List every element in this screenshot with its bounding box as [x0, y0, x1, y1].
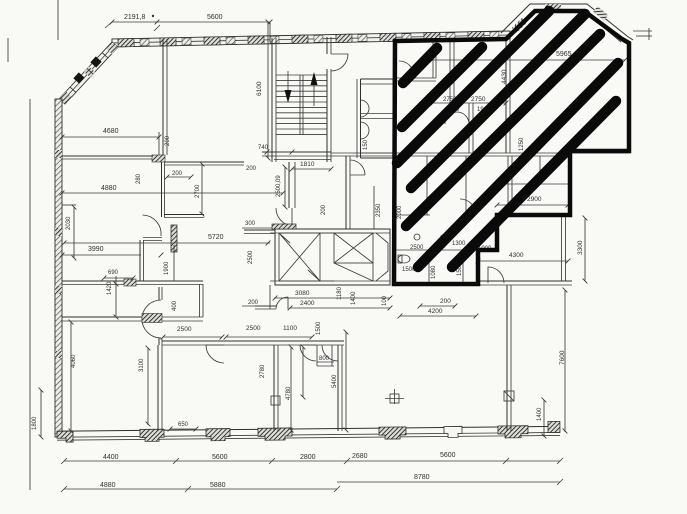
- svg-text:3300: 3300: [577, 240, 584, 255]
- svg-text:2350: 2350: [376, 203, 382, 217]
- svg-text:200: 200: [248, 300, 259, 306]
- svg-text:200: 200: [321, 204, 327, 215]
- svg-text:5400: 5400: [332, 374, 338, 388]
- svg-text:3080: 3080: [295, 290, 310, 297]
- svg-text:2500: 2500: [246, 325, 261, 332]
- svg-text:4300: 4300: [509, 252, 524, 259]
- svg-text:4880: 4880: [100, 482, 116, 489]
- svg-text:280: 280: [136, 173, 142, 184]
- svg-text:4680: 4680: [103, 128, 119, 135]
- svg-text:690: 690: [108, 270, 119, 276]
- svg-text:5880: 5880: [210, 482, 226, 489]
- svg-text:1250: 1250: [519, 137, 525, 151]
- svg-text:150: 150: [363, 139, 369, 150]
- svg-text:2900: 2900: [527, 196, 542, 203]
- svg-text:2500: 2500: [177, 326, 192, 333]
- svg-text:200: 200: [246, 166, 257, 172]
- svg-text:2030: 2030: [66, 216, 72, 230]
- svg-text:4060: 4060: [71, 354, 77, 368]
- svg-text:3990: 3990: [88, 246, 104, 253]
- svg-text:4400: 4400: [103, 454, 119, 461]
- svg-text:4880: 4880: [101, 185, 117, 192]
- svg-text:2400: 2400: [300, 300, 315, 307]
- svg-text:2800: 2800: [300, 454, 316, 461]
- svg-text:3100: 3100: [139, 358, 145, 372]
- svg-text:100: 100: [382, 295, 388, 306]
- svg-text:2680: 2680: [352, 453, 368, 460]
- svg-text:200: 200: [165, 135, 171, 146]
- svg-text:4200: 4200: [428, 308, 443, 315]
- svg-text:5720: 5720: [208, 234, 224, 241]
- svg-text:2780: 2780: [260, 364, 266, 378]
- svg-text:740: 740: [258, 145, 269, 151]
- svg-text:2191,8: 2191,8: [124, 14, 146, 21]
- svg-text:650: 650: [178, 422, 189, 428]
- svg-text:5600: 5600: [212, 454, 228, 461]
- svg-text:2500,09: 2500,09: [276, 175, 282, 197]
- svg-text:1800: 1800: [32, 416, 38, 430]
- svg-text:1400: 1400: [351, 291, 357, 305]
- svg-text:2000: 2000: [397, 205, 403, 219]
- svg-text:6100: 6100: [256, 81, 263, 96]
- svg-text:1400: 1400: [537, 407, 543, 421]
- svg-text:200: 200: [172, 171, 183, 177]
- svg-text:300: 300: [245, 221, 256, 227]
- svg-text:5600: 5600: [440, 452, 456, 459]
- svg-text:800: 800: [319, 356, 330, 362]
- svg-text:5600: 5600: [207, 14, 223, 21]
- svg-text:1500: 1500: [316, 321, 322, 335]
- svg-text:1080: 1080: [431, 265, 437, 279]
- svg-text:2750: 2750: [471, 96, 486, 103]
- svg-text:2700: 2700: [195, 184, 201, 198]
- svg-text:1180: 1180: [337, 286, 343, 300]
- svg-text:4430: 4430: [501, 69, 508, 84]
- svg-text:2500: 2500: [248, 250, 254, 264]
- svg-text:1900: 1900: [164, 261, 170, 275]
- svg-text:1100: 1100: [283, 325, 297, 332]
- svg-text:5965: 5965: [556, 51, 572, 58]
- svg-text:4780: 4780: [286, 386, 292, 400]
- svg-text:200: 200: [440, 298, 451, 305]
- svg-text:2500: 2500: [410, 245, 424, 251]
- svg-text:1300: 1300: [452, 241, 466, 247]
- svg-text:400: 400: [172, 300, 178, 311]
- svg-text:8780: 8780: [414, 474, 430, 481]
- svg-text:1810: 1810: [300, 161, 315, 168]
- svg-text:1420: 1420: [107, 281, 113, 295]
